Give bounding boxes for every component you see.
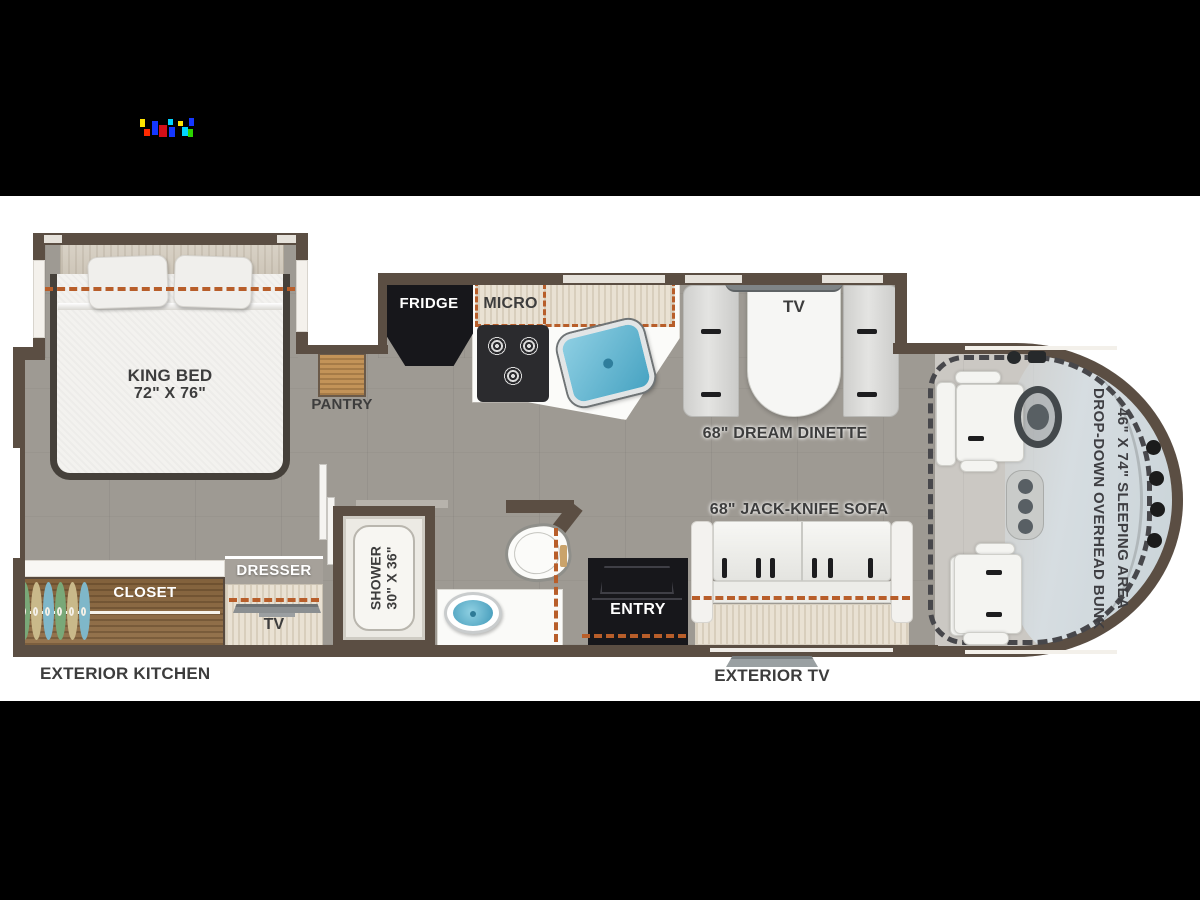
seatbelt-mark <box>722 558 727 578</box>
dinette-bench-right <box>843 285 899 417</box>
passenger-seat-cushion <box>954 554 1022 634</box>
dinette-caption: 68" DREAM DINETTE <box>695 425 875 443</box>
seatbelt-mark <box>756 558 761 578</box>
hanger-icon <box>31 582 42 640</box>
front-marker-dot <box>1150 502 1165 517</box>
shower-enclosure: SHOWER 30" X 36" <box>333 506 435 650</box>
bedroom-window-top-left <box>44 235 62 243</box>
bed-label-line1: KING BED <box>95 366 245 385</box>
passenger-seat-headrest <box>963 632 1009 645</box>
kitchen-wall-left-stub <box>378 273 387 353</box>
front-marker-dot <box>1147 533 1162 548</box>
entry-step-outline <box>600 566 674 594</box>
entry-slide-line <box>582 634 686 638</box>
center-console <box>1006 470 1044 540</box>
sofa-slide-line <box>692 596 910 600</box>
bed-label: KING BED 72" X 76" <box>95 366 245 403</box>
bedroom-tv-label: TV <box>225 616 323 634</box>
seatbelt-mark <box>857 329 877 334</box>
steering-wheel-icon <box>1014 386 1062 448</box>
bedroom-wall-right-upper <box>296 245 308 260</box>
bedroom-tv-slide-line <box>229 598 319 602</box>
pantry-label: PANTRY <box>300 397 384 414</box>
shower-label: SHOWER 30" X 36" <box>368 523 399 633</box>
console-dot <box>1018 479 1033 494</box>
hanger-icon <box>55 582 66 640</box>
artifact-pixel <box>188 129 193 137</box>
seatbelt-mark <box>868 558 873 578</box>
bed-label-line2: 72" X 76" <box>95 385 245 403</box>
sofa-backrest <box>713 521 891 581</box>
kitchen-wall-right-stub <box>895 273 907 353</box>
console-dot <box>1018 519 1033 534</box>
seatbelt-mark <box>968 436 984 441</box>
artifact-pixel <box>144 129 150 136</box>
kitchen-window <box>563 275 665 283</box>
seatbelt-mark <box>986 612 1002 617</box>
burner-icon <box>518 335 540 357</box>
front-marker-dot <box>1146 440 1161 455</box>
bedroom-window-top-right <box>277 235 296 243</box>
shower-pan-inner: SHOWER 30" X 36" <box>353 525 415 631</box>
driver-seat-back <box>936 382 956 466</box>
bedroom-window-right <box>296 260 308 332</box>
shower-label-line2: 30" X 36" <box>384 523 400 633</box>
dash-knob-icon <box>1007 351 1021 364</box>
toilet-hinge <box>560 545 567 567</box>
closet-label: CLOSET <box>100 585 190 602</box>
artifact-pixel <box>178 121 183 126</box>
pantry <box>318 353 366 397</box>
dinette-window-left <box>685 275 742 283</box>
driver-seat-armrest <box>960 460 998 472</box>
seatbelt-mark <box>701 392 721 397</box>
sofa-arm-left <box>691 521 713 623</box>
console-dot <box>1018 499 1033 514</box>
bedroom-wall-left-upper <box>33 245 45 260</box>
dinette-bench-left <box>683 285 739 417</box>
artifact-pixel <box>169 127 175 137</box>
sink-drain <box>602 357 614 369</box>
fridge <box>385 278 473 366</box>
bath-sink-icon <box>444 592 502 634</box>
seatbelt-mark <box>701 329 721 334</box>
cab-window-top <box>965 346 1117 350</box>
artifact-pixel <box>152 121 158 135</box>
hanger-icon <box>79 582 90 640</box>
bunk-label-line2: 46" X 74" SLEEPING AREA <box>1110 378 1134 640</box>
artifact-pixel <box>140 119 145 127</box>
bath-sink-bowl <box>453 600 493 626</box>
shower-label-line1: SHOWER <box>368 523 384 633</box>
bed-pillow-right <box>173 255 253 310</box>
hanger-icon <box>67 582 78 640</box>
artifact-pixel <box>159 125 167 137</box>
seatbelt-mark <box>857 392 877 397</box>
stove-icon <box>477 325 549 402</box>
dash-vent-icon <box>1028 351 1046 363</box>
bedroom-wall-top <box>33 233 308 245</box>
entry-step-line <box>592 598 682 600</box>
body-window-bottom <box>710 648 900 652</box>
floor-plan-image: KING BED 72" X 76" CLOSET DRESSER TV PAN… <box>0 0 1200 900</box>
kitchen-overhead-cabinet: MICRO <box>475 280 675 327</box>
dinette-window-right <box>822 275 883 283</box>
micro-label: MICRO <box>483 295 537 313</box>
bedroom-window-left <box>33 260 45 338</box>
sofa-cushion-seam <box>801 522 803 582</box>
bedroom-tv-icon <box>233 604 321 613</box>
bunk-label-line1: DROP-DOWN OVERHEAD BUNK <box>1086 378 1110 640</box>
hanger-icon <box>43 582 54 640</box>
sofa-base <box>695 604 909 645</box>
artifact-pixel <box>168 119 173 125</box>
bath-sink-drain <box>470 611 476 617</box>
pocket-door-panel <box>319 464 327 540</box>
seatbelt-mark <box>828 558 833 578</box>
closet-counter-strip <box>13 560 225 577</box>
bunk-label: DROP-DOWN OVERHEAD BUNK 46" X 74" SLEEPI… <box>1086 378 1138 640</box>
bath-slide-line <box>554 528 558 642</box>
exterior-kitchen-label: EXTERIOR KITCHEN <box>40 664 220 683</box>
cab-window-bottom <box>965 650 1117 654</box>
dresser-label: DRESSER <box>225 563 323 580</box>
bedroom-kitchen-connector-wall <box>296 345 388 354</box>
driver-seat-headrest <box>955 371 1001 384</box>
logo-artifact-icon <box>138 115 196 143</box>
seatbelt-mark <box>770 558 775 578</box>
seatbelt-mark <box>812 558 817 578</box>
body-window-left <box>13 448 20 558</box>
exterior-tv-label: EXTERIOR TV <box>704 666 840 685</box>
bed-pillow-left <box>87 255 169 310</box>
sofa-label: 68" JACK-KNIFE SOFA <box>689 501 909 519</box>
burner-icon <box>502 365 524 387</box>
bedroom-slide-line <box>45 287 295 291</box>
artifact-pixel <box>189 118 194 126</box>
seatbelt-mark <box>986 570 1002 575</box>
entry-label: ENTRY <box>588 601 688 619</box>
shower-pan: SHOWER 30" X 36" <box>343 516 425 640</box>
micro-cabinet-cell: MICRO <box>478 283 546 324</box>
fridge-label: FRIDGE <box>385 296 473 313</box>
dinette-tv-label: TV <box>747 297 841 316</box>
burner-icon <box>486 335 508 357</box>
front-marker-dot <box>1149 471 1164 486</box>
steering-hub <box>1027 404 1049 430</box>
